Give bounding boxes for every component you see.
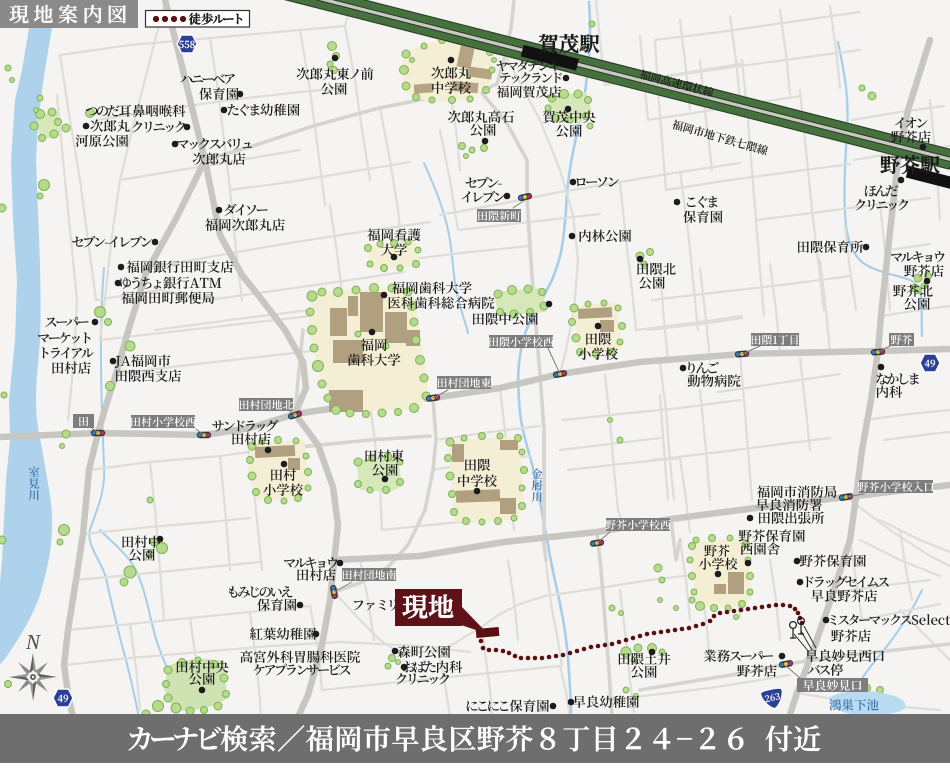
svg-text:N: N <box>25 630 41 654</box>
